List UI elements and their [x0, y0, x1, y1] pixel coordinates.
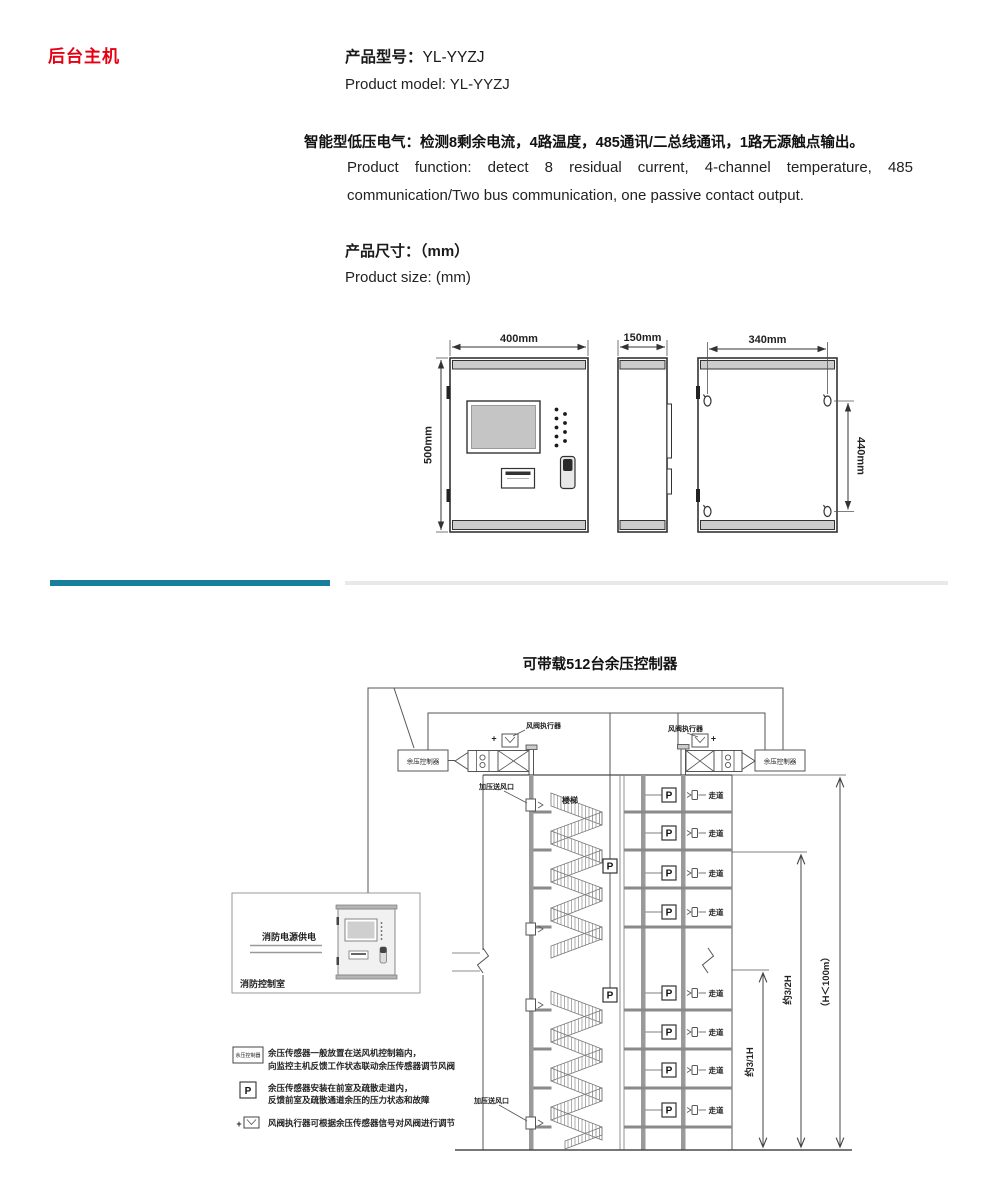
- damper-left: [498, 751, 529, 772]
- divider-accent: [50, 580, 330, 586]
- svg-text:P: P: [666, 1028, 673, 1039]
- outlet-label-top: 加压送风口: [478, 782, 514, 791]
- svg-text:400mm: 400mm: [500, 333, 538, 345]
- outlet-label-bottom: 加压送风口: [473, 1096, 509, 1105]
- svg-text:余压传感器一般放置在送风机控制箱内，: 余压传感器一般放置在送风机控制箱内，: [267, 1048, 421, 1058]
- dim-total-height: （H＜100m）: [820, 952, 832, 1012]
- pressure-controller-left: 余压控制器: [398, 750, 448, 771]
- legend-item-controller: 余压控制器 余压传感器一般放置在送风机控制箱内， 向监控主机反馈工作状态联动余压…: [233, 1047, 455, 1071]
- svg-text:P: P: [666, 908, 673, 919]
- svg-text:P: P: [666, 869, 673, 880]
- svg-text:500mm: 500mm: [423, 426, 435, 464]
- svg-text:向监控主机反馈工作状态联动余压传感器调节风阀: 向监控主机反馈工作状态联动余压传感器调节风阀: [268, 1061, 455, 1071]
- size-label-en: Product size: (mm): [345, 269, 471, 286]
- damper-right: [686, 751, 714, 772]
- stairs-label: 楼梯: [562, 795, 578, 805]
- fire-control-room: 消防电源供电 消防控制室: [232, 893, 420, 993]
- svg-text:P: P: [666, 1106, 673, 1117]
- building-section: [452, 775, 852, 1150]
- dim-mount-height: 440mm: [834, 401, 867, 512]
- product-model-row: 产品型号：YL-YYZJ: [345, 45, 485, 67]
- supply-fan-left: + 风阀执行器: [448, 721, 562, 775]
- size-label-zh: 产品尺寸：（mm）: [345, 240, 469, 261]
- svg-text:余压控制器: 余压控制器: [407, 757, 440, 766]
- product-spec-page: { "header": { "section_title": "后台主机", "…: [0, 0, 1000, 1200]
- svg-text:走道: 走道: [709, 1065, 724, 1075]
- hinge: [447, 386, 451, 399]
- svg-text:风阀执行器可根据余压传感器信号对风阀进行调节: 风阀执行器可根据余压传感器信号对风阀进行调节: [268, 1118, 456, 1128]
- hinge: [696, 489, 700, 502]
- svg-text:+: +: [711, 734, 716, 744]
- svg-text:余压控制器: 余压控制器: [764, 757, 797, 766]
- svg-text:P: P: [666, 989, 673, 1000]
- svg-text:余压控制器: 余压控制器: [235, 1052, 260, 1059]
- stairwell-sensor: P: [603, 988, 617, 1002]
- model-label-en: Product model: YL-YYZJ: [345, 76, 510, 93]
- svg-text:走道: 走道: [709, 868, 724, 878]
- product-dimension-drawing: 400mm 500mm 150mm: [400, 328, 880, 545]
- front-slot: [502, 469, 535, 489]
- height-dimensions: 约3/1H 约3/2H （H＜100m）: [732, 775, 846, 1147]
- dim-front-width: 400mm: [450, 333, 588, 356]
- svg-text:P: P: [607, 862, 614, 873]
- divider-rest: [345, 581, 948, 585]
- dim-front-height: 500mm: [423, 358, 449, 532]
- dim-lower-third: 约3/1H: [744, 1047, 756, 1077]
- hinge: [696, 386, 700, 399]
- svg-text:+: +: [236, 1119, 241, 1129]
- front-view: [447, 358, 589, 532]
- host-cabinet: [336, 905, 397, 979]
- svg-text:150mm: 150mm: [624, 332, 662, 344]
- legend-item-sensor: P 余压传感器安装在前室及疏散走道内， 反馈前室及疏散通道余压的压力状态和故障: [240, 1082, 430, 1105]
- svg-text:走道: 走道: [709, 988, 724, 998]
- diagram-title: 可带载512台余压控制器: [450, 653, 750, 674]
- legend-item-actuator: + 风阀执行器可根据余压传感器信号对风阀进行调节: [236, 1117, 455, 1129]
- supply-fan-right: + 风阀执行器: [668, 724, 755, 775]
- mount-rail: [667, 469, 672, 494]
- svg-text:340mm: 340mm: [749, 334, 787, 346]
- svg-text:440mm: 440mm: [855, 437, 867, 475]
- stairwell-sensor: P: [603, 859, 617, 873]
- mount-rail: [667, 404, 672, 458]
- svg-text:走道: 走道: [709, 828, 724, 838]
- staircase: [551, 793, 602, 1149]
- legend: 余压控制器 余压传感器一般放置在送风机控制箱内， 向监控主机反馈工作状态联动余压…: [233, 1047, 456, 1129]
- model-value: YL-YYZJ: [423, 49, 485, 66]
- dim-depth: 150mm: [618, 332, 667, 356]
- page-title: 后台主机: [48, 42, 120, 67]
- function-text-en-line2: communication/Two bus communication, one…: [347, 187, 804, 204]
- back-view: [696, 358, 837, 532]
- side-view: [618, 358, 672, 532]
- svg-text:走道: 走道: [709, 1027, 724, 1037]
- svg-text:P: P: [666, 829, 673, 840]
- svg-text:P: P: [245, 1086, 252, 1097]
- hinge: [447, 489, 451, 502]
- model-label-zh: 产品型号：: [345, 49, 423, 66]
- damper-actuator-right: +: [692, 734, 716, 748]
- svg-text:走道: 走道: [709, 790, 724, 800]
- function-text-zh: 智能型低压电气：检测8剩余电流，4路温度，485通讯/二总线通讯，1路无源触点输…: [304, 131, 864, 152]
- svg-text:+: +: [491, 734, 496, 744]
- actuator-label-left: 风阀执行器: [526, 721, 562, 730]
- svg-text:走道: 走道: [709, 907, 724, 917]
- pressure-controller-right: 余压控制器: [755, 750, 805, 771]
- dim-upper-two-thirds: 约3/2H: [782, 975, 794, 1005]
- svg-text:P: P: [666, 791, 673, 802]
- fire-room-label: 消防控制室: [240, 978, 285, 989]
- function-text-en-line1: Product function: detect 8 residual curr…: [347, 159, 913, 176]
- svg-text:走道: 走道: [709, 1105, 724, 1115]
- fire-power-label: 消防电源供电: [262, 931, 316, 942]
- door-lock: [561, 457, 576, 489]
- system-diagram: 消防电源供电 消防控制室 余压控制器: [228, 675, 973, 1167]
- svg-text:反馈前室及疏散通道余压的压力状态和故障: 反馈前室及疏散通道余压的压力状态和故障: [268, 1095, 430, 1105]
- svg-text:P: P: [607, 991, 614, 1002]
- actuator-label-right: 风阀执行器: [668, 724, 704, 733]
- svg-text:P: P: [666, 1066, 673, 1077]
- svg-text:余压传感器安装在前室及疏散走道内，: 余压传感器安装在前室及疏散走道内，: [267, 1083, 413, 1093]
